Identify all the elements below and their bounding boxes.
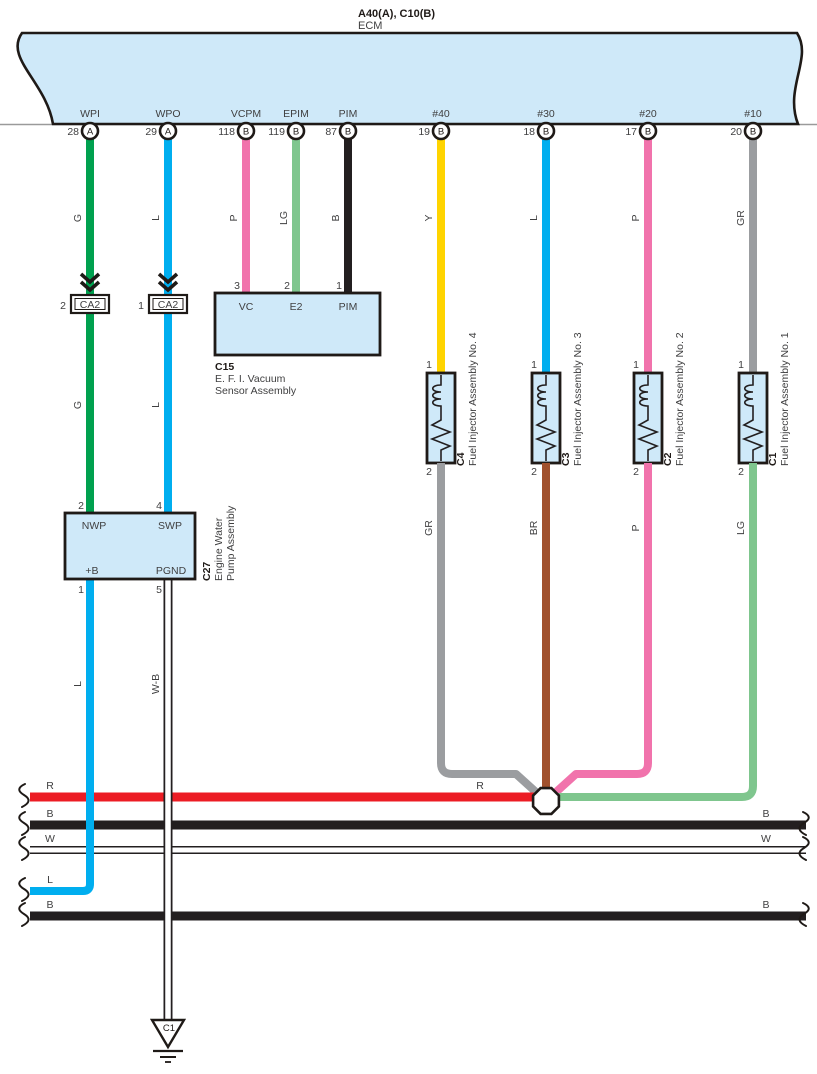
injector-pin-bottom: 2	[426, 466, 432, 478]
pin-number: 28	[67, 126, 79, 138]
injector-pin-bottom: 2	[633, 466, 639, 478]
ecm-title: A40(A), C10(B)	[358, 8, 435, 20]
injector-name: Fuel Injector Assembly No. 4	[467, 332, 479, 466]
connector-letter: B	[438, 127, 444, 138]
wire-c4-gray-to-junction	[441, 463, 537, 793]
wire-label-p: P	[228, 214, 240, 221]
connector-letter: B	[645, 127, 651, 138]
wire-label-br-lower: BR	[528, 520, 540, 535]
pin-name-pim: PIM	[339, 108, 358, 120]
bus-label-b2-left: B	[46, 899, 53, 911]
bus-label-w-left: W	[45, 833, 55, 845]
pin-name-wpo: WPO	[155, 108, 180, 120]
c27-pin-nwp: NWP	[82, 520, 107, 532]
ecm-band	[18, 33, 802, 124]
ecm-subtitle: ECM	[358, 20, 382, 32]
wire-plus-b-blue	[30, 579, 90, 891]
component-c3-injector: 1 2 C3 Fuel Injector Assembly No. 3	[531, 332, 584, 478]
injector-pin-top: 1	[633, 359, 639, 371]
injector-id: C1	[767, 452, 779, 466]
bus-label-w-right: W	[761, 833, 771, 845]
wire-label-l2: L	[528, 215, 540, 221]
injector-pin-bottom: 2	[531, 466, 537, 478]
bus-break-icon	[19, 903, 28, 926]
c15-pin-vc: VC	[239, 301, 254, 313]
injector-name: Fuel Injector Assembly No. 3	[572, 332, 584, 466]
c15-desc2: Sensor Assembly	[215, 385, 297, 397]
wire-label-gr-lower: GR	[423, 520, 435, 536]
component-c4-injector: 1 2 C4 Fuel Injector Assembly No. 4	[426, 332, 479, 478]
bus-break-icon	[19, 878, 28, 901]
pin-number: 118	[218, 126, 235, 138]
injector-pin-top: 1	[531, 359, 537, 371]
injector-name: Fuel Injector Assembly No. 1	[779, 332, 791, 466]
wire-label-l: L	[150, 215, 162, 221]
bus-label-b1-left: B	[46, 808, 53, 820]
wire-label-g-lower: G	[72, 401, 84, 409]
wire-label-lg: LG	[278, 211, 290, 225]
pin-name-20: #20	[639, 108, 657, 120]
pin-number: 19	[418, 126, 430, 138]
inline-connector-ca2-green: CA2 2	[60, 274, 109, 313]
ground-id: C1	[163, 1023, 175, 1034]
connector-letter: B	[293, 127, 299, 138]
pin-name-30: #30	[537, 108, 555, 120]
diagram-canvas: A40(A), C10(B) ECM WPI WPO VCPM EPIM PIM…	[0, 0, 817, 1074]
c15-pin-pim: PIM	[339, 301, 358, 313]
component-c1-injector: 1 2 C1 Fuel Injector Assembly No. 1	[738, 332, 791, 478]
wire-label-p-lower: P	[630, 524, 642, 531]
c27-pin-pgnd: PGND	[156, 565, 187, 577]
wire-label-b: B	[330, 214, 342, 221]
c15-pin-e2: E2	[290, 301, 303, 313]
pin-name-wpi: WPI	[80, 108, 100, 120]
c15-pin-number-3: 3	[234, 280, 240, 292]
bus-break-icon	[19, 812, 28, 835]
bus-label-l-left: L	[47, 874, 53, 886]
c27-pin-number-4: 4	[156, 500, 162, 512]
c15-pin-number-1: 1	[336, 280, 342, 292]
c27-pin-number-1: 1	[78, 584, 84, 596]
injector-name: Fuel Injector Assembly No. 2	[674, 332, 686, 466]
pin-name-epim: EPIM	[283, 108, 309, 120]
connector-letter: B	[543, 127, 549, 138]
connector-letter: B	[345, 127, 351, 138]
wire-label-p2: P	[630, 214, 642, 221]
wire-label-l-bottom: L	[72, 681, 84, 687]
c27-pin-number-2: 2	[78, 500, 84, 512]
c27-pin-b: +B	[85, 565, 98, 577]
wire-c2-pink-to-junction	[555, 463, 648, 793]
bus-break-icon	[19, 784, 28, 807]
wire-label-l-lower: L	[150, 402, 162, 408]
bus-label-b1-right: B	[762, 808, 769, 820]
connector-pin-number: 1	[138, 300, 144, 312]
injector-pin-bottom: 2	[738, 466, 744, 478]
connector-pin-number: 2	[60, 300, 66, 312]
bus-label-b2-right: B	[762, 899, 769, 911]
c15-id: C15	[215, 361, 234, 373]
injector-id: C2	[662, 452, 674, 466]
injector-id: C3	[560, 452, 572, 466]
wiring-diagram: A40(A), C10(B) ECM WPI WPO VCPM EPIM PIM…	[0, 0, 817, 1074]
wire-c1-lightgreen-to-junction	[558, 463, 753, 797]
c27-pin-number-5: 5	[156, 584, 162, 596]
ground-c1: C1	[152, 1020, 184, 1062]
injector-pin-top: 1	[426, 359, 432, 371]
bus-break-icon	[19, 837, 28, 860]
splice-junction	[533, 788, 559, 814]
component-c2-injector: 1 2 C2 Fuel Injector Assembly No. 2	[633, 332, 686, 478]
connector-label: CA2	[158, 299, 179, 311]
wire-label-y: Y	[423, 214, 435, 221]
pin-name-40: #40	[432, 108, 450, 120]
c27-desc2: Pump Assembly	[225, 505, 237, 581]
inline-connector-ca2-blue: CA2 1	[138, 274, 187, 313]
component-c15: 3 2 1 VC E2 PIM C15 E. F. I. Vacuum Sens…	[215, 280, 380, 397]
pin-number: 29	[145, 126, 157, 138]
pin-name-vcpm: VCPM	[231, 108, 261, 120]
c15-desc1: E. F. I. Vacuum	[215, 373, 286, 385]
wire-label-gr: GR	[735, 210, 747, 226]
connector-label: CA2	[80, 299, 101, 311]
wire-label-lg-lower: LG	[735, 521, 747, 535]
c27-desc1: Engine Water	[213, 517, 225, 581]
connector-letter: B	[243, 127, 249, 138]
injector-pin-top: 1	[738, 359, 744, 371]
wire-label-wb-bottom: W-B	[150, 674, 162, 694]
bus-label-r-mid: R	[476, 780, 484, 792]
c27-pin-swp: SWP	[158, 520, 182, 532]
pin-number: 87	[325, 126, 337, 138]
pin-number: 20	[730, 126, 742, 138]
pin-number: 119	[268, 126, 285, 138]
bus-label-r-left: R	[46, 780, 54, 792]
c15-pin-number-2: 2	[284, 280, 290, 292]
injector-id: C4	[455, 452, 467, 466]
wire-label-g: G	[72, 214, 84, 222]
ecm-pin-connectors: 28 A 29 A 118 B 119 B 87 B 19 B 18 B 17 …	[67, 123, 761, 139]
connector-letter: A	[165, 127, 172, 138]
connector-letter: B	[750, 127, 756, 138]
pin-number: 18	[523, 126, 535, 138]
connector-letter: A	[87, 127, 94, 138]
c27-id: C27	[201, 562, 213, 581]
pin-name-10: #10	[744, 108, 762, 120]
pin-number: 17	[625, 126, 637, 138]
